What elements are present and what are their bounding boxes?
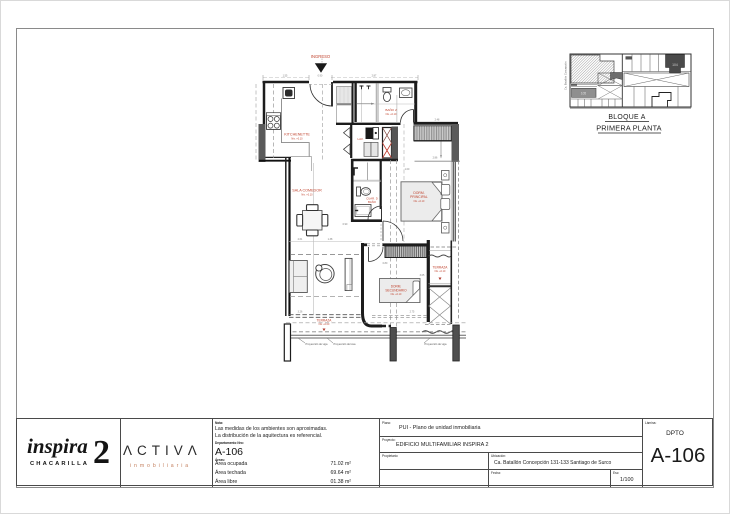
svg-text:KITCHENETTE: KITCHENETTE xyxy=(284,133,310,137)
svg-text:Proyección de viga: Proyección de viga xyxy=(306,342,328,346)
svg-text:INGRESO: INGRESO xyxy=(311,54,331,59)
svg-text:Proyección de losa: Proyección de losa xyxy=(334,342,356,346)
svg-text:0.90: 0.90 xyxy=(343,223,348,226)
svg-text:3.05: 3.05 xyxy=(420,274,425,277)
svg-text:1.38: 1.38 xyxy=(328,238,333,241)
svg-text:BAÑO: BAÑO xyxy=(368,199,377,204)
svg-text:0.90: 0.90 xyxy=(318,75,323,78)
svg-text:SALA COMEDOR: SALA COMEDOR xyxy=(292,189,322,193)
svg-text:LAV.: LAV. xyxy=(357,137,363,141)
svg-text:Proyección de viga: Proyección de viga xyxy=(425,342,447,346)
svg-text:2.75: 2.75 xyxy=(410,311,415,314)
svg-text:BAÑO 2: BAÑO 2 xyxy=(385,107,397,112)
svg-text:0.80: 0.80 xyxy=(383,262,388,265)
svg-text:1.55: 1.55 xyxy=(283,75,288,78)
svg-text:104: 104 xyxy=(672,63,678,67)
svg-text:Ca. Batallón Concepción: Ca. Batallón Concepción xyxy=(564,61,568,90)
svg-text:TERRAZA: TERRAZA xyxy=(433,266,449,270)
svg-text:3.26: 3.26 xyxy=(298,311,303,314)
svg-text:Niv. +0.10: Niv. +0.10 xyxy=(291,138,303,141)
svg-text:Niv. +0.00: Niv. +0.00 xyxy=(319,323,330,326)
svg-text:2.87: 2.87 xyxy=(372,75,377,78)
svg-text:Niv. +0.10: Niv. +0.10 xyxy=(435,270,446,273)
svg-text:105: 105 xyxy=(581,92,587,96)
svg-text:TERRAZA: TERRAZA xyxy=(317,319,333,323)
svg-text:PRINCIPAL: PRINCIPAL xyxy=(410,195,428,199)
svg-text:2.48: 2.48 xyxy=(435,119,440,122)
svg-text:SECUNDARIO: SECUNDARIO xyxy=(385,288,407,292)
svg-text:Niv. +0.10: Niv. +0.10 xyxy=(386,113,397,116)
svg-text:PRIMERA PLANTA: PRIMERA PLANTA xyxy=(596,124,662,133)
svg-text:1.00: 1.00 xyxy=(405,168,410,171)
svg-text:2.86: 2.86 xyxy=(433,157,438,160)
svg-text:2.61: 2.61 xyxy=(298,238,303,241)
svg-text:Niv. +0.10: Niv. +0.10 xyxy=(301,193,313,196)
svg-text:BLOQUE A: BLOQUE A xyxy=(608,114,645,121)
svg-text:Niv. +0.10: Niv. +0.10 xyxy=(414,200,425,203)
svg-text:Niv. +0.10: Niv. +0.10 xyxy=(391,293,402,296)
